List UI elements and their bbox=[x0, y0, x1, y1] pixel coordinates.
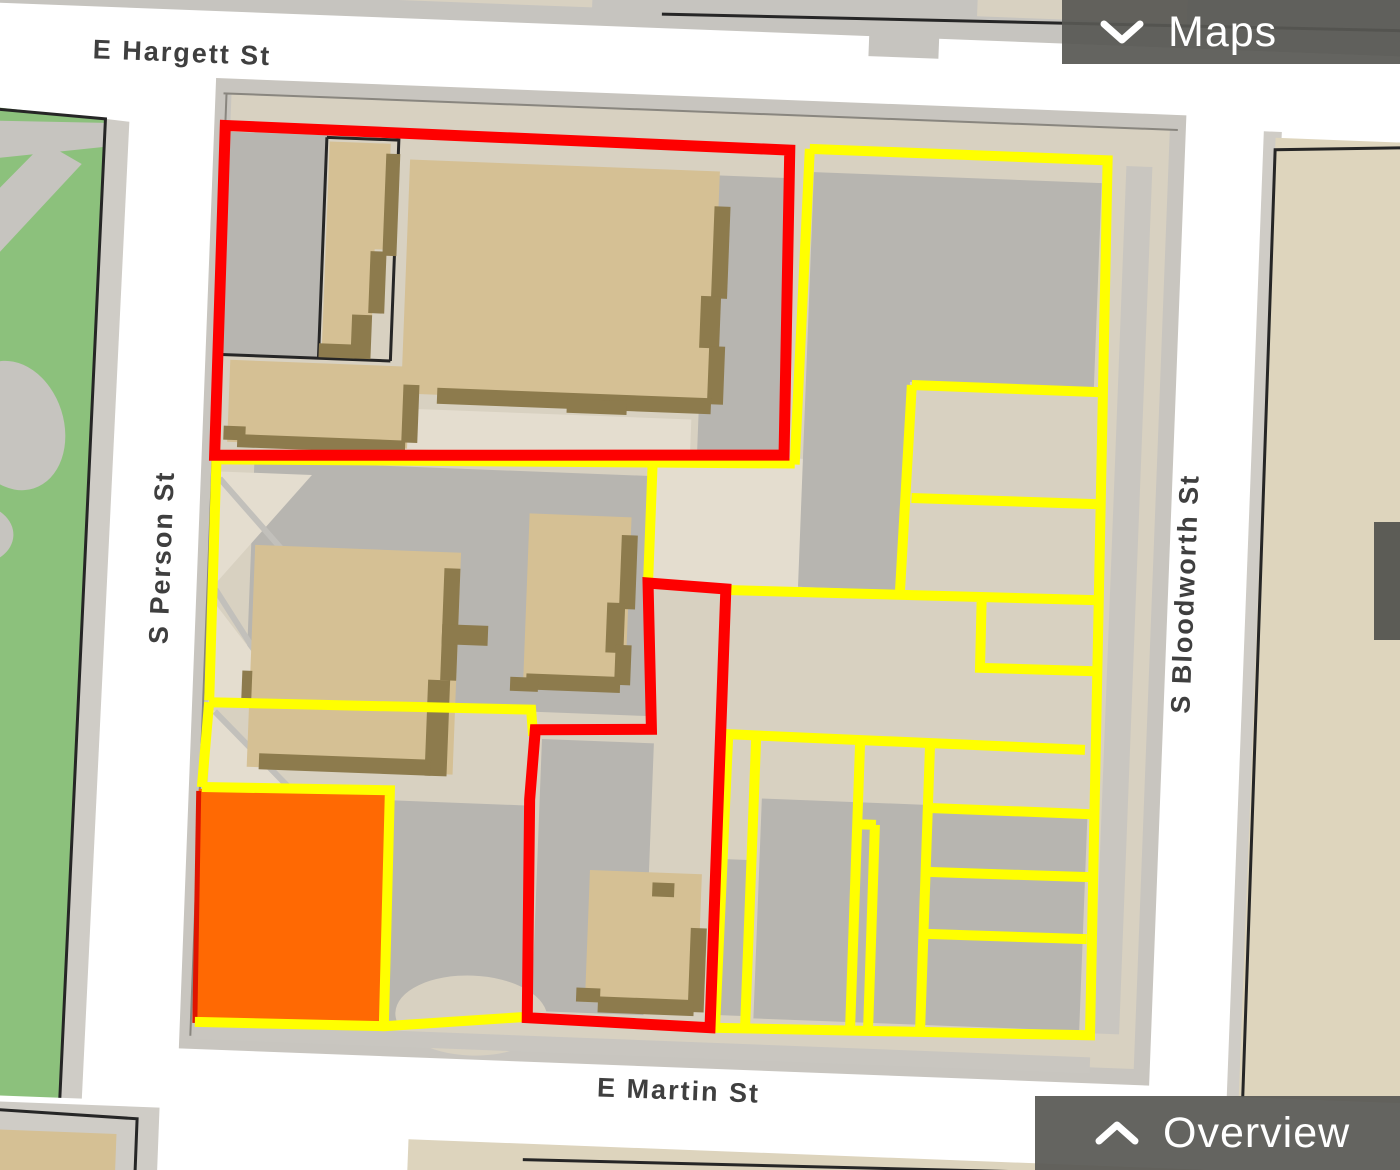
courtyard bbox=[652, 453, 807, 591]
overview-panel-label: Overview bbox=[1163, 1109, 1350, 1158]
parking-lot bbox=[753, 799, 925, 1025]
street-label-person: S Person St bbox=[143, 470, 180, 645]
street-label-bloodworth: S Bloodworth St bbox=[1165, 473, 1204, 714]
chevron-up-icon bbox=[1095, 1121, 1139, 1145]
yellow-line-central[interactable] bbox=[648, 450, 653, 585]
selected-parcel-fill[interactable] bbox=[190, 784, 393, 1030]
building-mid-center bbox=[510, 513, 639, 696]
street-label-hargett: E Hargett St bbox=[92, 34, 272, 71]
parking-lot bbox=[921, 809, 1087, 1031]
south-west-building bbox=[0, 1129, 116, 1170]
chevron-down-icon bbox=[1100, 20, 1144, 44]
driveway-stub bbox=[868, 30, 939, 59]
building-small-west bbox=[223, 360, 420, 454]
side-panel-handle[interactable] bbox=[1374, 522, 1400, 640]
overview-panel-toggle[interactable]: Overview bbox=[1035, 1096, 1400, 1170]
main-block: E Hargett St S Person St S Bloodworth St… bbox=[53, 34, 1220, 1125]
building-large-north bbox=[401, 160, 732, 419]
maps-panel-toggle[interactable]: Maps bbox=[1062, 0, 1400, 64]
building-south-center bbox=[576, 870, 709, 1017]
maps-panel-label: Maps bbox=[1168, 8, 1277, 57]
building-mid-west bbox=[239, 545, 491, 778]
rotated-map-layer: E Hargett St S Person St S Bloodworth St… bbox=[0, 0, 1400, 1170]
park-block bbox=[0, 97, 130, 1099]
parking-lot bbox=[221, 132, 327, 359]
map-canvas[interactable]: E Hargett St S Person St S Bloodworth St… bbox=[0, 0, 1400, 1170]
street-label-martin: E Martin St bbox=[597, 1072, 761, 1108]
map-viewport[interactable]: E Hargett St S Person St S Bloodworth St… bbox=[0, 0, 1400, 1170]
